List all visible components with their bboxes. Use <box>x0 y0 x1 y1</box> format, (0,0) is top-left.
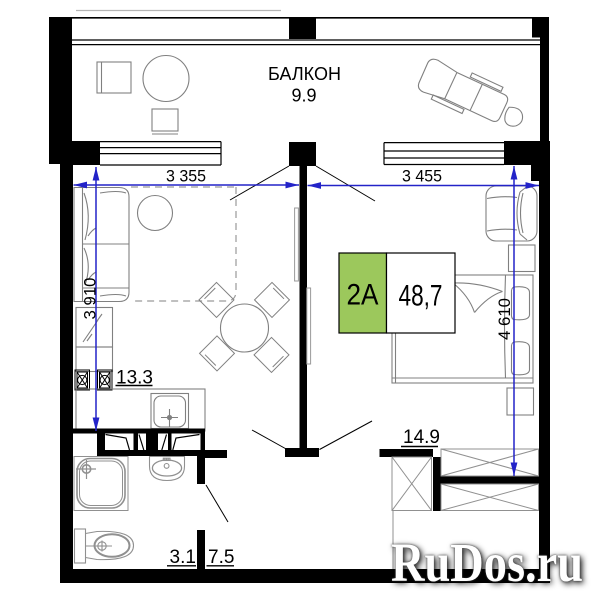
svg-text:7.5: 7.5 <box>208 547 234 568</box>
svg-text:4 610: 4 610 <box>495 298 514 340</box>
svg-text:3.1: 3.1 <box>170 547 196 568</box>
svg-text:3 910: 3 910 <box>81 278 100 320</box>
svg-text:БАЛКОН: БАЛКОН <box>268 64 341 84</box>
svg-text:2A: 2A <box>347 279 379 312</box>
svg-text:9.9: 9.9 <box>291 86 316 106</box>
svg-text:RuDos.ru: RuDos.ru <box>391 532 583 593</box>
svg-text:48,7: 48,7 <box>399 280 443 313</box>
svg-text:14.9: 14.9 <box>403 427 440 448</box>
svg-text:3 355: 3 355 <box>166 167 206 186</box>
svg-text:3 455: 3 455 <box>402 167 442 186</box>
